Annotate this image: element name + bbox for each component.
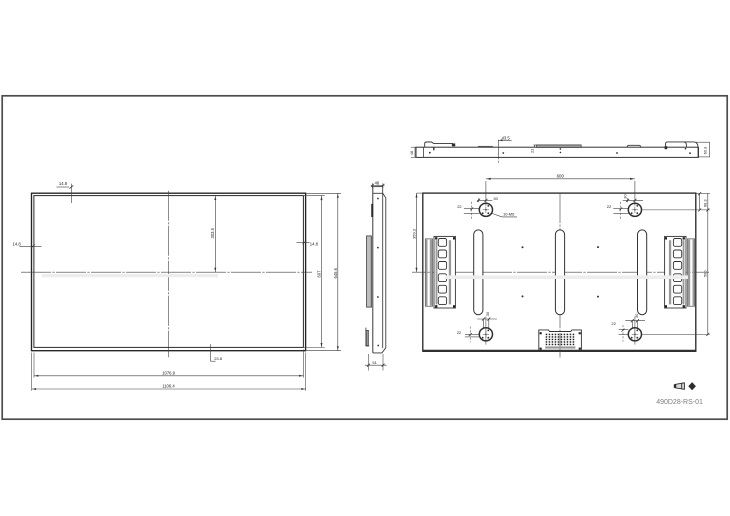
svg-text:21: 21 (530, 149, 535, 153)
svg-text:22: 22 (457, 204, 462, 209)
svg-text:14.8: 14.8 (13, 242, 22, 247)
svg-text:645.6: 645.6 (333, 267, 338, 278)
svg-text:600: 600 (557, 174, 565, 179)
svg-text:607: 607 (317, 270, 322, 278)
svg-text:10-M6: 10-M6 (503, 212, 515, 217)
svg-text:23.8: 23.8 (214, 356, 223, 361)
svg-text:303.5: 303.5 (210, 227, 215, 238)
svg-text:22: 22 (457, 330, 462, 335)
svg-text:1076.9: 1076.9 (162, 370, 175, 375)
svg-text:22: 22 (611, 321, 616, 326)
svg-text:48: 48 (375, 181, 380, 186)
svg-text:68.3: 68.3 (703, 199, 708, 207)
svg-text:22: 22 (607, 204, 612, 209)
svg-text:51: 51 (372, 360, 377, 365)
svg-text:500: 500 (702, 270, 707, 277)
svg-text:1106.4: 1106.4 (162, 384, 175, 389)
svg-text:60.3: 60.3 (702, 147, 707, 155)
svg-text:48: 48 (409, 151, 414, 155)
svg-text:43.5: 43.5 (502, 135, 511, 140)
svg-text:359.3: 359.3 (411, 228, 416, 239)
svg-text:490D28-RS-01: 490D28-RS-01 (656, 399, 703, 406)
svg-text:14.8: 14.8 (59, 181, 68, 186)
svg-text:14.8: 14.8 (310, 241, 319, 246)
svg-text:30: 30 (493, 196, 498, 201)
